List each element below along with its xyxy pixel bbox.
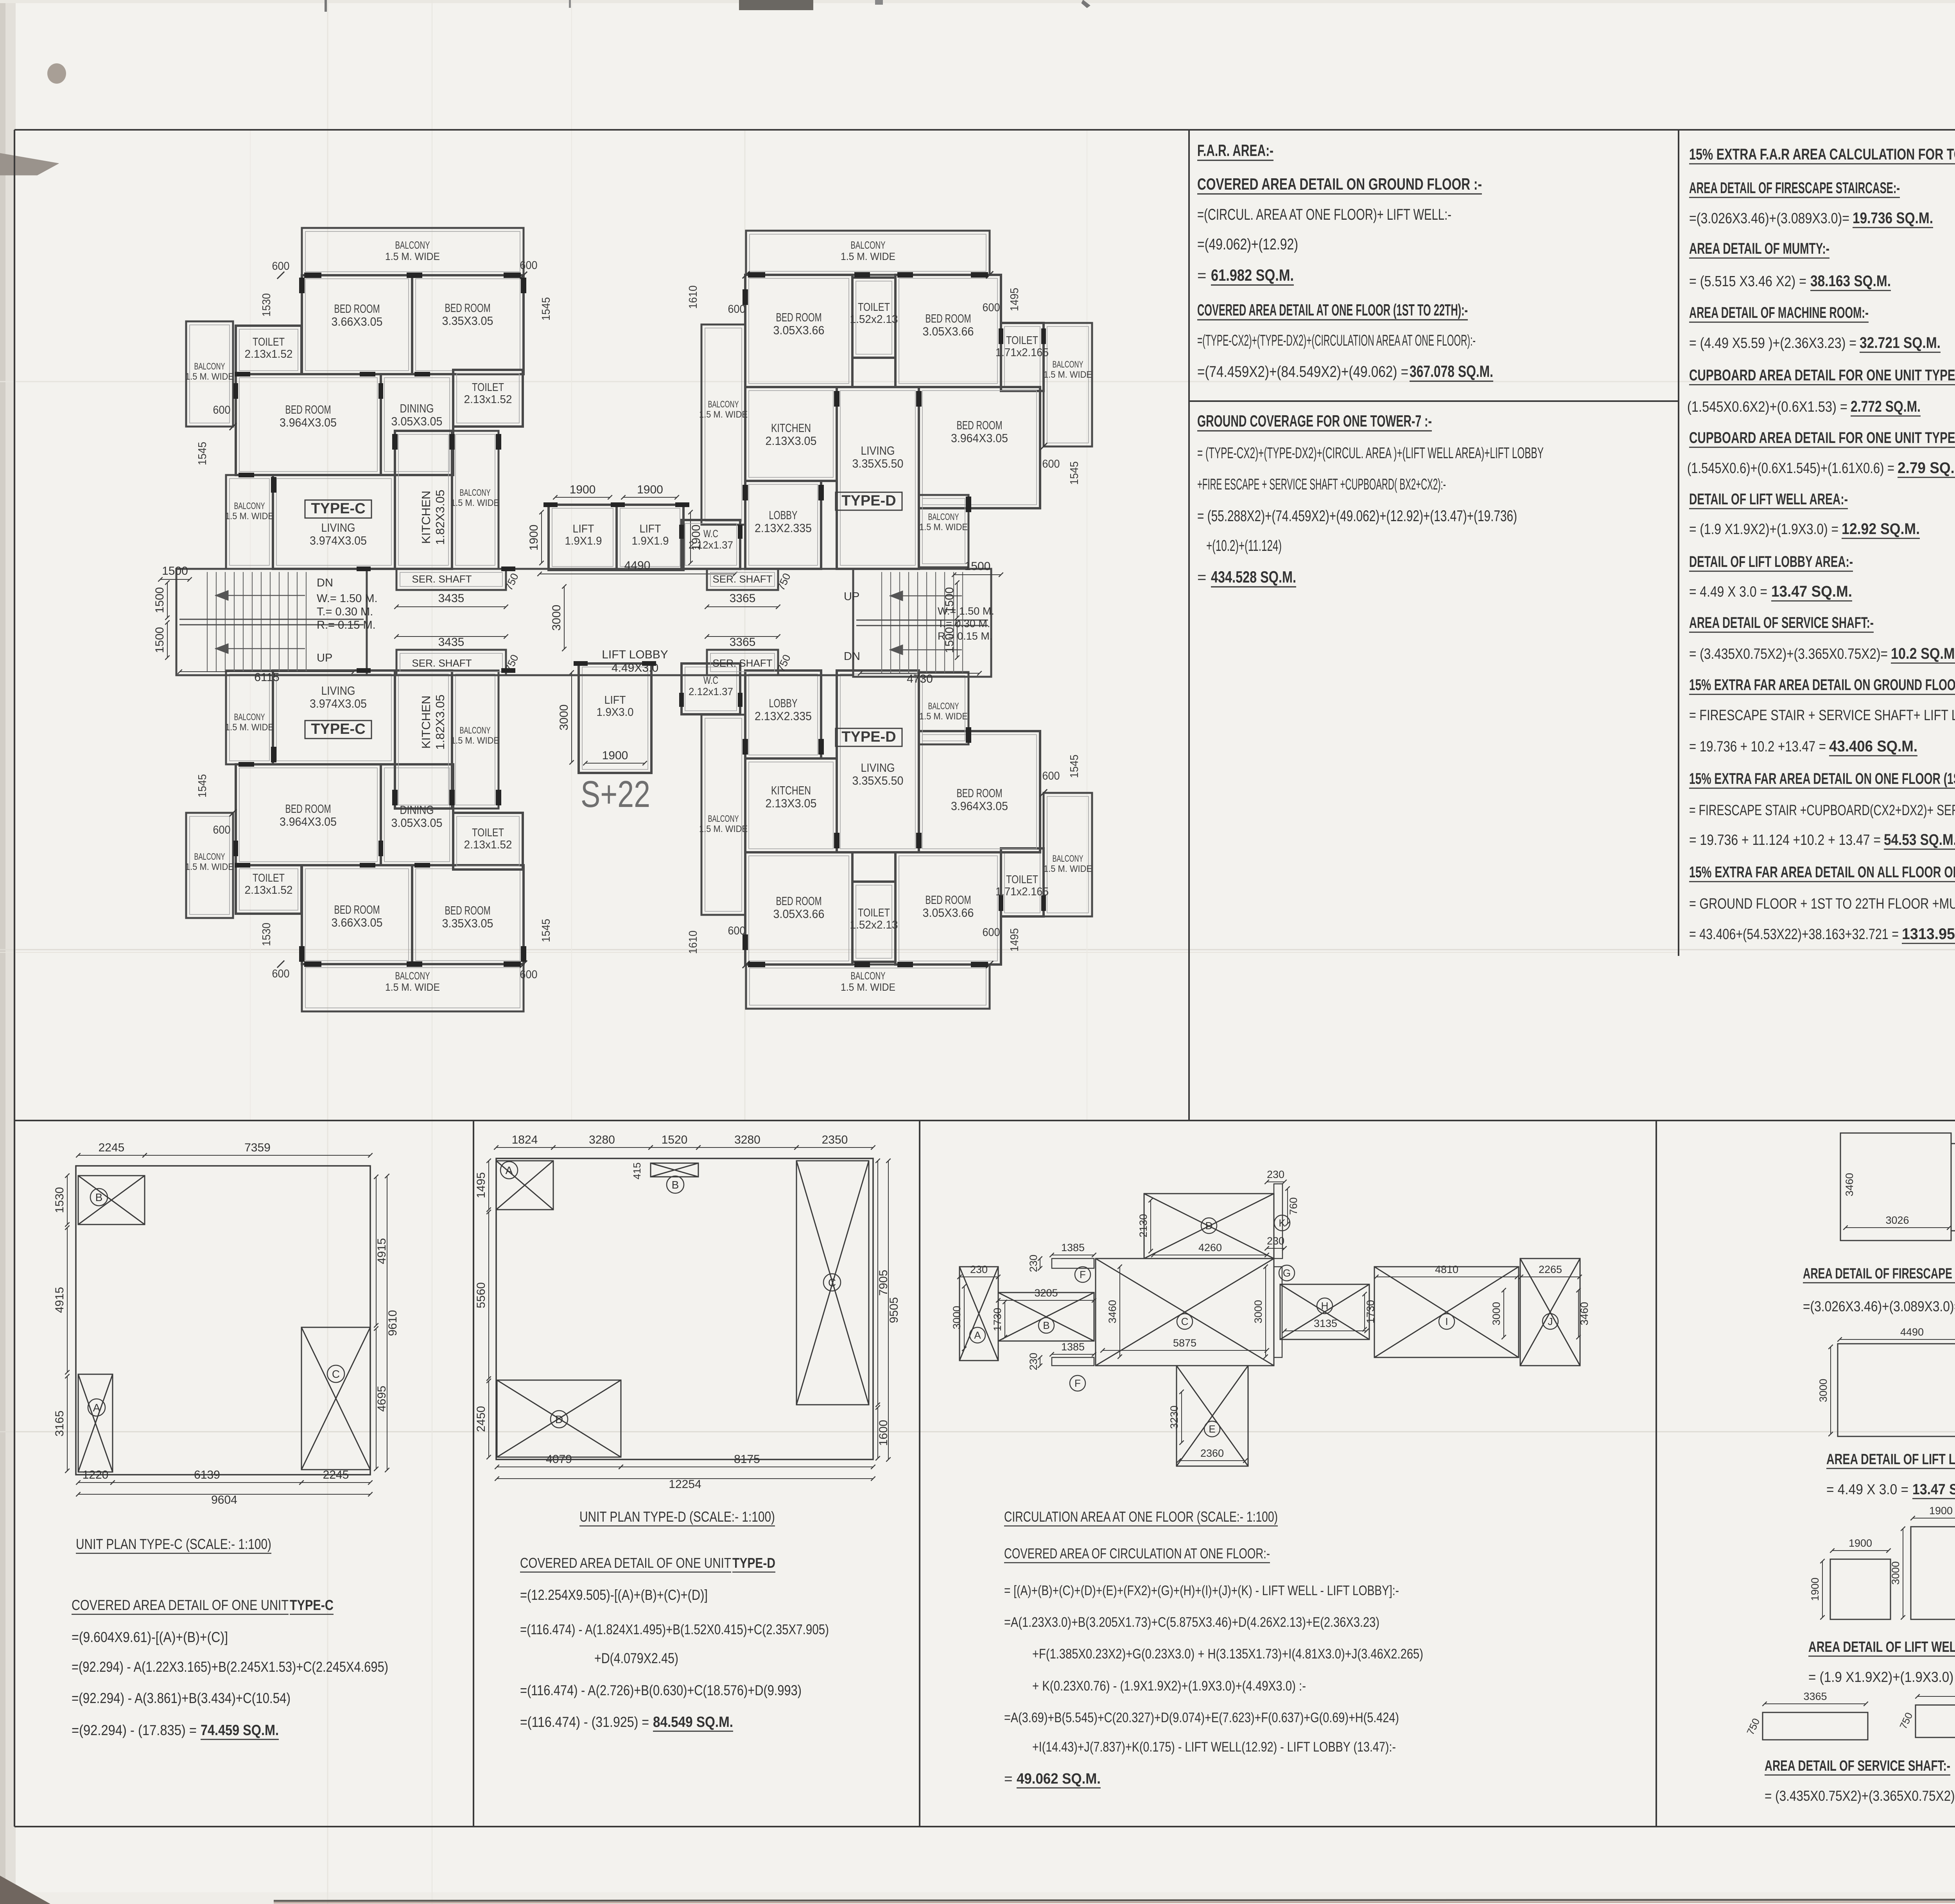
svg-text:BED ROOM: BED ROOM: [925, 312, 971, 325]
svg-text:43.406 SQ.M.: 43.406 SQ.M.: [1829, 738, 1917, 755]
svg-text:BALCONY: BALCONY: [1053, 359, 1083, 370]
svg-text:= (TYPE-CX2)+(TYPE-DX2)+(CIRCU: = (TYPE-CX2)+(TYPE-DX2)+(CIRCUL. AREA )+…: [1197, 445, 1544, 462]
svg-text:TOILET: TOILET: [253, 336, 285, 348]
svg-text:TYPE-D: TYPE-D: [841, 729, 896, 745]
svg-text:3460: 3460: [1107, 1300, 1118, 1323]
svg-text:1.5 M. WIDE: 1.5 M. WIDE: [919, 711, 968, 722]
svg-text:13.47 SQ.M.: 13.47 SQ.M.: [1771, 583, 1852, 600]
svg-text:B: B: [672, 1179, 679, 1191]
svg-text:1545: 1545: [196, 442, 209, 465]
svg-text:BED ROOM: BED ROOM: [776, 310, 822, 324]
svg-text:2350: 2350: [822, 1133, 848, 1146]
svg-text:=(92.294) - A(1.22X3.165)+B(2.: =(92.294) - A(1.22X3.165)+B(2.245X1.53)+…: [72, 1659, 388, 1675]
svg-text:2.13x1.52: 2.13x1.52: [245, 348, 293, 360]
svg-text:1.52x2.13: 1.52x2.13: [850, 919, 898, 931]
svg-text:F: F: [1074, 1377, 1081, 1389]
svg-text:1.82X3.05: 1.82X3.05: [433, 489, 447, 545]
svg-text:=(92.294) - A(3.861)+B(3.434)+: =(92.294) - A(3.861)+B(3.434)+C(10.54): [72, 1690, 291, 1706]
svg-text:UNIT PLAN TYPE-D (SCALE:- 1:1: UNIT PLAN TYPE-D (SCALE:- 1:100): [579, 1509, 775, 1525]
svg-text:3165: 3165: [53, 1411, 66, 1437]
svg-text:3000: 3000: [1252, 1300, 1264, 1323]
svg-text:C: C: [1181, 1316, 1189, 1327]
svg-text:1.5 M. WIDE: 1.5 M. WIDE: [185, 862, 234, 872]
svg-text:19.736 SQ.M.: 19.736 SQ.M.: [1853, 210, 1933, 227]
svg-text:600: 600: [213, 824, 231, 836]
svg-text:TOILET: TOILET: [858, 907, 890, 919]
svg-text:84.549 SQ.M.: 84.549 SQ.M.: [653, 1714, 733, 1730]
svg-text:49.062 SQ.M.: 49.062 SQ.M.: [1017, 1771, 1101, 1787]
svg-text:KITCHEN: KITCHEN: [771, 783, 811, 797]
svg-text:1500: 1500: [943, 587, 956, 613]
svg-text:1.9X1.9: 1.9X1.9: [565, 535, 602, 547]
svg-text:2245: 2245: [99, 1141, 125, 1154]
svg-text:3.66X3.05: 3.66X3.05: [332, 916, 383, 929]
svg-text:3365: 3365: [730, 592, 756, 605]
svg-text:3.35X3.05: 3.35X3.05: [442, 314, 493, 328]
svg-text:3230: 3230: [1168, 1406, 1180, 1429]
svg-text:E: E: [1209, 1423, 1215, 1435]
svg-text:CIRCULATION AREA AT ONE FLOOR: CIRCULATION AREA AT ONE FLOOR (SCALE:- 1…: [1004, 1509, 1278, 1525]
svg-text:2450: 2450: [475, 1406, 488, 1432]
svg-text:DN: DN: [317, 577, 333, 589]
svg-text:UP: UP: [844, 590, 859, 603]
svg-text:B: B: [95, 1191, 103, 1203]
svg-text:15% EXTRA F.A.R AREA CALCULATI: 15% EXTRA F.A.R AREA CALCULATION FOR TOW…: [1689, 146, 1955, 163]
svg-text:=(12.254X9.505)-[(A)+(B)+(C)+(: =(12.254X9.505)-[(A)+(B)+(C)+(D)]: [520, 1587, 708, 1603]
svg-text:1.71x2.165: 1.71x2.165: [995, 886, 1049, 898]
svg-text:1495: 1495: [1008, 928, 1021, 952]
svg-text:1.5 M. WIDE: 1.5 M. WIDE: [699, 409, 748, 420]
svg-text:I: I: [1445, 1316, 1448, 1327]
svg-text:DN: DN: [844, 650, 860, 663]
svg-text:1.5 M. WIDE: 1.5 M. WIDE: [699, 824, 748, 834]
svg-text:3.964X3.05: 3.964X3.05: [280, 416, 337, 429]
svg-text:1.5 M. WIDE: 1.5 M. WIDE: [841, 981, 895, 993]
svg-text:=(9.604X9.61)-[(A)+(B)+(C)]: =(9.604X9.61)-[(A)+(B)+(C)]: [72, 1629, 228, 1645]
svg-text:BED ROOM: BED ROOM: [925, 893, 971, 907]
svg-text:3.974X3.05: 3.974X3.05: [310, 534, 367, 547]
svg-text:KITCHEN: KITCHEN: [419, 491, 433, 544]
svg-text:1.9X3.0: 1.9X3.0: [597, 706, 634, 719]
svg-text:3000: 3000: [1890, 1561, 1901, 1585]
svg-text:=(92.294) - (17.835) =: =(92.294) - (17.835) =: [72, 1722, 197, 1738]
svg-text:=(116.474) - (31.925) =: =(116.474) - (31.925) =: [520, 1714, 649, 1730]
svg-text:COVERED AREA OF CIRCULATION AT: COVERED AREA OF CIRCULATION AT ONE FLOOR…: [1004, 1545, 1270, 1562]
svg-text:1900: 1900: [602, 749, 628, 762]
svg-text:CUPBOARD AREA DETAIL FOR ONE U: CUPBOARD AREA DETAIL FOR ONE UNIT TYPE-C: [1689, 367, 1955, 384]
svg-text:10.2 SQ.M.: 10.2 SQ.M.: [1891, 645, 1955, 662]
svg-text:LIFT LOBBY: LIFT LOBBY: [602, 648, 668, 661]
svg-text:3.05X3.66: 3.05X3.66: [773, 323, 825, 337]
svg-text:LIFT: LIFT: [604, 694, 626, 706]
svg-text:=(3.026X3.46)+(3.089X3.0)=: =(3.026X3.46)+(3.089X3.0)=: [1803, 1298, 1955, 1314]
svg-text:= (3.435X0.75X2)+(3.365X0.75X2: = (3.435X0.75X2)+(3.365X0.75X2)=: [1689, 646, 1888, 662]
svg-text:1500: 1500: [965, 560, 991, 573]
svg-text:2.13X2.335: 2.13X2.335: [755, 521, 812, 535]
svg-text:1530: 1530: [53, 1187, 66, 1213]
svg-text:4915: 4915: [53, 1287, 66, 1313]
svg-text:1824: 1824: [512, 1133, 538, 1146]
svg-text:AREA DETAIL OF SERVICE SHAFT:-: AREA DETAIL OF SERVICE SHAFT:-: [1765, 1758, 1950, 1774]
svg-text:+F(1.385X0.23X2)+G(0.23X3.0) +: +F(1.385X0.23X2)+G(0.23X3.0) + H(3.135X1…: [1032, 1646, 1423, 1662]
svg-text:1495: 1495: [1008, 288, 1021, 311]
svg-text:1610: 1610: [687, 285, 699, 309]
svg-text:= 19.736 + 11.124 +10.2 + 13.4: = 19.736 + 11.124 +10.2 + 13.47 =: [1689, 832, 1881, 848]
svg-text:3460: 3460: [1844, 1173, 1855, 1196]
svg-text:LIVING: LIVING: [321, 684, 355, 697]
svg-text:=: =: [1197, 569, 1206, 586]
svg-text:61.982 SQ.M.: 61.982 SQ.M.: [1211, 266, 1294, 284]
svg-text:AREA DETAIL OF FIRESCAPE STAIR: AREA DETAIL OF FIRESCAPE STAIRCASE:-: [1689, 179, 1900, 197]
svg-text:74.459 SQ.M.: 74.459 SQ.M.: [201, 1722, 279, 1739]
svg-text:367.078 SQ.M.: 367.078 SQ.M.: [1410, 362, 1493, 380]
svg-text:LOBBY: LOBBY: [769, 508, 798, 522]
svg-text:1545: 1545: [540, 297, 552, 321]
svg-text:D: D: [1205, 1220, 1213, 1232]
svg-text:1900: 1900: [527, 525, 540, 551]
svg-text:BALCONY: BALCONY: [234, 501, 265, 511]
svg-text:TYPE-D: TYPE-D: [732, 1555, 775, 1571]
svg-text:J: J: [1548, 1316, 1553, 1327]
svg-text:5875: 5875: [1173, 1337, 1196, 1349]
svg-text:415: 415: [631, 1162, 643, 1179]
svg-text:1545: 1545: [196, 774, 209, 798]
svg-text:12254: 12254: [669, 1478, 701, 1491]
svg-text:3.05X3.05: 3.05X3.05: [391, 816, 443, 830]
svg-text:3.05X3.66: 3.05X3.66: [923, 906, 974, 920]
svg-text:BED ROOM: BED ROOM: [445, 904, 491, 917]
svg-text:4695: 4695: [375, 1386, 388, 1412]
svg-text:BALCONY: BALCONY: [928, 701, 959, 712]
svg-text:=(116.474) - A(1.824X1.495)+B(: =(116.474) - A(1.824X1.495)+B(1.52X0.415…: [520, 1621, 829, 1637]
svg-text:(1.545X0.6X2)+(0.6X1.53) =: (1.545X0.6X2)+(0.6X1.53) =: [1687, 399, 1847, 415]
svg-text:32.721 SQ.M.: 32.721 SQ.M.: [1860, 334, 1941, 351]
svg-text:= 19.736 + 10.2 +13.47 =: = 19.736 + 10.2 +13.47 =: [1689, 739, 1826, 755]
svg-text:F: F: [1080, 1269, 1086, 1280]
svg-text:3365: 3365: [1803, 1691, 1827, 1702]
svg-text:W.C: W.C: [703, 528, 718, 540]
svg-text:A: A: [506, 1164, 513, 1176]
svg-text:13.47 SQ.M.: 13.47 SQ.M.: [1912, 1481, 1955, 1498]
svg-text:3435: 3435: [438, 592, 465, 605]
svg-text:+ K(0.23X0.76) - (1.9X1.9X2)+(: + K(0.23X0.76) - (1.9X1.9X2)+(1.9X3.0)+(…: [1032, 1678, 1306, 1694]
svg-text:1900: 1900: [1809, 1578, 1821, 1601]
svg-text:= (1.9 X1.9X2)+(1.9X3.0) =: = (1.9 X1.9X2)+(1.9X3.0) =: [1689, 521, 1838, 538]
svg-text:15% EXTRA FAR AREA DETAIL ON O: 15% EXTRA FAR AREA DETAIL ON ONE FLOOR (…: [1689, 770, 1955, 787]
svg-text:BED ROOM: BED ROOM: [334, 903, 380, 916]
svg-text:2.13x1.52: 2.13x1.52: [464, 839, 512, 851]
svg-text:AREA DETAIL OF LIFT LOBBY:-: AREA DETAIL OF LIFT LOBBY:-: [1826, 1451, 1955, 1468]
svg-text:9505: 9505: [888, 1297, 900, 1323]
svg-text:38.163 SQ.M.: 38.163 SQ.M.: [1810, 273, 1891, 290]
svg-text:4079: 4079: [546, 1453, 572, 1466]
svg-text:=A(1.23X3.0)+B(3.205X1.73)+C(5: =A(1.23X3.0)+B(3.205X1.73)+C(5.875X3.46)…: [1004, 1615, 1379, 1630]
svg-text:4490: 4490: [1900, 1326, 1924, 1338]
svg-text:TOILET: TOILET: [253, 872, 285, 884]
svg-text:1.5 M. WIDE: 1.5 M. WIDE: [225, 511, 274, 522]
svg-text:1545: 1545: [540, 919, 552, 942]
svg-text:=: =: [1004, 1771, 1013, 1787]
svg-text:230: 230: [1028, 1353, 1039, 1370]
svg-text:1530: 1530: [260, 293, 273, 317]
svg-text:2.13X2.335: 2.13X2.335: [755, 709, 812, 723]
svg-text:+(10.2)+(11.124): +(10.2)+(11.124): [1206, 537, 1282, 554]
svg-text:7359: 7359: [244, 1141, 271, 1154]
svg-text:= 4.49 X 3.0 =: = 4.49 X 3.0 =: [1826, 1481, 1908, 1497]
svg-text:= GROUND FLOOR + 1ST TO 22TH: = GROUND FLOOR + 1ST TO 22TH FLOOR +MUMT…: [1689, 896, 1955, 912]
svg-text:G: G: [1283, 1267, 1291, 1279]
svg-text:3000: 3000: [1817, 1379, 1829, 1402]
svg-text:3435: 3435: [438, 636, 465, 649]
svg-text:1500: 1500: [153, 627, 166, 653]
svg-text:3000: 3000: [550, 605, 563, 631]
svg-text:1900: 1900: [637, 483, 663, 496]
svg-text:SER. SHAFT: SER. SHAFT: [712, 657, 772, 669]
svg-text:DETAIL OF LIFT WELL AREA:-: DETAIL OF LIFT WELL AREA:-: [1689, 491, 1848, 508]
svg-text:12.92 SQ.M.: 12.92 SQ.M.: [1842, 520, 1920, 538]
svg-text:9604: 9604: [211, 1493, 237, 1506]
svg-text:1385: 1385: [1061, 1242, 1085, 1253]
svg-text:BALCONY: BALCONY: [395, 239, 430, 251]
svg-text:BED ROOM: BED ROOM: [445, 301, 491, 315]
svg-text:1900: 1900: [570, 483, 596, 496]
svg-text:KITCHEN: KITCHEN: [771, 421, 811, 435]
svg-text:=(116.474) - A(2.726)+B(0.630): =(116.474) - A(2.726)+B(0.630)+C(18.576)…: [520, 1682, 802, 1698]
svg-text:230: 230: [970, 1264, 988, 1275]
svg-text:2.12x1.37: 2.12x1.37: [689, 686, 733, 697]
svg-text:1.5 M. WIDE: 1.5 M. WIDE: [385, 981, 440, 993]
svg-text:3.964X3.05: 3.964X3.05: [951, 799, 1008, 813]
svg-text:3026: 3026: [1885, 1214, 1909, 1226]
svg-text:TYPE-D: TYPE-D: [841, 493, 896, 509]
svg-text:F.A.R. AREA:-: F.A.R. AREA:-: [1197, 141, 1273, 160]
svg-text:BALCONY: BALCONY: [708, 399, 739, 410]
svg-text:1.71x2.165: 1.71x2.165: [995, 346, 1049, 359]
svg-text:600: 600: [1042, 458, 1060, 470]
svg-text:(1.545X0.6)+(0.6X1.545)+(1.61X: (1.545X0.6)+(0.6X1.545)+(1.61X0.6) =: [1687, 460, 1894, 477]
svg-text:= 43.406+(54.53X22)+38.163+32.: = 43.406+(54.53X22)+38.163+32.721 =: [1689, 926, 1899, 943]
svg-text:TOILET: TOILET: [1006, 334, 1038, 347]
svg-text:1500: 1500: [943, 627, 956, 653]
svg-text:COVERED AREA DETAIL OF ONE UNI: COVERED AREA DETAIL OF ONE UNIT: [72, 1597, 289, 1613]
svg-text:BED ROOM: BED ROOM: [776, 894, 822, 908]
svg-text:3.05X3.05: 3.05X3.05: [391, 414, 443, 428]
svg-text:SER. SHAFT: SER. SHAFT: [412, 657, 472, 669]
svg-text:A: A: [93, 1402, 100, 1414]
svg-text:K: K: [1279, 1217, 1286, 1229]
svg-text:TOILET: TOILET: [472, 827, 504, 839]
svg-text:= (1.9 X1.9X2)+(1.9X3.0) =: = (1.9 X1.9X2)+(1.9X3.0) =: [1808, 1669, 1955, 1685]
svg-text:UNIT PLAN TYPE-C (SCALE:- 1:1: UNIT PLAN TYPE-C (SCALE:- 1:100): [76, 1536, 271, 1552]
svg-text:=(TYPE-CX2)+(TYPE-DX2)+(CIRCUL: =(TYPE-CX2)+(TYPE-DX2)+(CIRCULATION AREA…: [1197, 332, 1476, 349]
svg-text:C: C: [828, 1277, 836, 1289]
svg-text:BALCONY: BALCONY: [460, 488, 491, 498]
svg-text:1495: 1495: [475, 1172, 488, 1198]
svg-text:+FIRE ESCAPE + SERVICE SHAFT +: +FIRE ESCAPE + SERVICE SHAFT +CUPBOARD( …: [1197, 476, 1446, 493]
svg-text:2.79 SQ.M.: 2.79 SQ.M.: [1898, 459, 1955, 477]
svg-text:BED ROOM: BED ROOM: [285, 403, 331, 416]
svg-text:TOILET: TOILET: [1006, 873, 1038, 886]
svg-text:760: 760: [1288, 1197, 1299, 1215]
svg-text:1730: 1730: [1365, 1300, 1376, 1323]
svg-text:= (4.49 X5.59 )+(2.36X3.23) =: = (4.49 X5.59 )+(2.36X3.23) =: [1689, 335, 1856, 351]
svg-text:H: H: [1321, 1300, 1329, 1312]
svg-text:1545: 1545: [1068, 755, 1081, 778]
svg-text:1.5 M. WIDE: 1.5 M. WIDE: [225, 722, 274, 733]
svg-text:1530: 1530: [260, 923, 273, 946]
svg-text:SER. SHAFT: SER. SHAFT: [412, 573, 472, 585]
svg-text:TYPE-C: TYPE-C: [311, 500, 365, 517]
svg-text:3.974X3.05: 3.974X3.05: [310, 697, 367, 710]
svg-text:BED ROOM: BED ROOM: [957, 786, 1003, 800]
svg-text:GROUND COVERAGE FOR ONE TOWER-: GROUND COVERAGE FOR ONE TOWER-7 :-: [1197, 412, 1432, 430]
svg-text:1900: 1900: [1929, 1505, 1953, 1517]
svg-text:3460: 3460: [1578, 1302, 1590, 1325]
svg-text:3280: 3280: [734, 1133, 760, 1146]
svg-text:2.13X3.05: 2.13X3.05: [766, 796, 817, 810]
svg-text:A: A: [974, 1329, 981, 1341]
svg-text:2.13x1.52: 2.13x1.52: [245, 884, 293, 896]
svg-text:3135: 3135: [1314, 1318, 1337, 1329]
svg-text:2.13x1.52: 2.13x1.52: [464, 393, 512, 406]
svg-text:1.5 M. WIDE: 1.5 M. WIDE: [385, 251, 440, 262]
svg-text:BED ROOM: BED ROOM: [957, 418, 1003, 432]
svg-text:1.52x2.13: 1.52x2.13: [850, 313, 898, 326]
svg-text:D: D: [555, 1413, 563, 1425]
svg-text:COVERED AREA DETAIL OF ONE UNI: COVERED AREA DETAIL OF ONE UNIT: [520, 1555, 731, 1571]
svg-text:R.= 0.15 M.: R.= 0.15 M.: [317, 619, 376, 631]
svg-text:=(CIRCUL. AREA AT ONE FLOOR)+: =(CIRCUL. AREA AT ONE FLOOR)+ LIFT WELL:…: [1197, 206, 1451, 223]
svg-text:1.9X1.9: 1.9X1.9: [632, 535, 669, 547]
svg-text:1520: 1520: [662, 1133, 688, 1146]
svg-text:1545: 1545: [1068, 461, 1081, 485]
svg-text:=(74.459X2)+(84.549X2)+(49.062: =(74.459X2)+(84.549X2)+(49.062) =: [1197, 363, 1408, 380]
svg-text:=: =: [1197, 267, 1206, 284]
svg-text:BALCONY: BALCONY: [1053, 853, 1083, 864]
svg-text:AREA DETAIL OF SERVICE SHAFT:-: AREA DETAIL OF SERVICE SHAFT:-: [1689, 614, 1874, 631]
svg-text:2.13X3.05: 2.13X3.05: [766, 434, 817, 448]
svg-text:DINING: DINING: [400, 402, 434, 415]
svg-text:1.5 M. WIDE: 1.5 M. WIDE: [919, 522, 968, 532]
svg-text:CUPBOARD AREA DETAIL FOR ONE U: CUPBOARD AREA DETAIL FOR ONE UNIT TYPE-D: [1689, 429, 1955, 446]
svg-text:= FIRESCAPE STAIR + SERVICE SH: = FIRESCAPE STAIR + SERVICE SHAFT+ LIFT …: [1689, 707, 1955, 724]
svg-text:BALCONY: BALCONY: [851, 239, 886, 251]
svg-text:434.528 SQ.M.: 434.528 SQ.M.: [1211, 568, 1296, 586]
svg-text:AREA DETAIL OF FIRESCAPE STAIR: AREA DETAIL OF FIRESCAPE STAIRCASE:-: [1803, 1266, 1955, 1282]
svg-text:600: 600: [983, 301, 1000, 314]
svg-text:BALCONY: BALCONY: [928, 512, 959, 522]
svg-text:600: 600: [272, 968, 290, 980]
svg-text:3.964X3.05: 3.964X3.05: [951, 431, 1008, 445]
svg-text:1500: 1500: [153, 587, 166, 613]
svg-text:W.= 1.50 M.: W.= 1.50 M.: [317, 592, 378, 605]
svg-text:15% EXTRA FAR AREA DETAIL ON A: 15% EXTRA FAR AREA DETAIL ON ALL FLOOR O…: [1689, 864, 1955, 881]
svg-text:5560: 5560: [475, 1282, 488, 1309]
svg-text:600: 600: [520, 968, 538, 981]
svg-text:4810: 4810: [1435, 1264, 1458, 1275]
svg-text:BALCONY: BALCONY: [460, 725, 491, 736]
svg-text:= (5.515 X3.46 X2) =: = (5.515 X3.46 X2) =: [1689, 273, 1806, 290]
svg-text:3280: 3280: [589, 1133, 615, 1146]
svg-text:1313.95 SQ.M.: 1313.95 SQ.M.: [1902, 925, 1955, 943]
svg-text:1500: 1500: [162, 565, 188, 577]
svg-text:1.5 M. WIDE: 1.5 M. WIDE: [451, 735, 499, 746]
svg-text:3.35X3.05: 3.35X3.05: [442, 916, 493, 930]
svg-text:BALCONY: BALCONY: [708, 814, 739, 824]
svg-text:LOBBY: LOBBY: [769, 696, 798, 710]
svg-text:3.66X3.05: 3.66X3.05: [332, 315, 383, 328]
svg-text:= (3.435X0.75X2)+(3.365X0.75X2: = (3.435X0.75X2)+(3.365X0.75X2)=: [1765, 1788, 1955, 1804]
svg-text:1.82X3.05: 1.82X3.05: [433, 694, 447, 749]
svg-text:2130: 2130: [1137, 1214, 1149, 1237]
svg-text:=(49.062)+(12.92): =(49.062)+(12.92): [1197, 236, 1298, 253]
svg-text:3.05X3.66: 3.05X3.66: [773, 907, 825, 921]
svg-text:AREA DETAIL OF MUMTY:-: AREA DETAIL OF MUMTY:-: [1689, 240, 1829, 257]
svg-text:C: C: [332, 1368, 340, 1380]
svg-text:3.964X3.05: 3.964X3.05: [280, 815, 337, 828]
svg-text:600: 600: [272, 260, 290, 273]
svg-text:LIFT: LIFT: [573, 523, 594, 535]
svg-text:UP: UP: [317, 652, 332, 664]
svg-text:600: 600: [520, 259, 538, 272]
svg-text:600: 600: [1042, 770, 1060, 782]
svg-text:3000: 3000: [1490, 1302, 1502, 1325]
svg-text:= [(A)+(B)+(C)+(D)+(E)+(FX2)+(: = [(A)+(B)+(C)+(D)+(E)+(FX2)+(G)+(H)+(I)…: [1004, 1583, 1399, 1598]
svg-text:1.5 M. WIDE: 1.5 M. WIDE: [1044, 864, 1092, 874]
svg-text:1.5 M. WIDE: 1.5 M. WIDE: [185, 371, 234, 382]
svg-text:1730: 1730: [992, 1308, 1003, 1331]
svg-text:2245: 2245: [323, 1468, 349, 1481]
svg-text:SER. SHAFT: SER. SHAFT: [712, 573, 772, 585]
svg-text:DINING: DINING: [400, 803, 434, 817]
svg-text:8175: 8175: [734, 1453, 760, 1466]
svg-text:1.5 M. WIDE: 1.5 M. WIDE: [1044, 369, 1092, 380]
svg-text:4260: 4260: [1198, 1242, 1222, 1253]
svg-text:S+22: S+22: [581, 773, 650, 815]
svg-text:DETAIL OF LIFT LOBBY AREA:-: DETAIL OF LIFT LOBBY AREA:-: [1689, 553, 1853, 570]
svg-text:= (55.288X2)+(74.459X2)+(49.0: = (55.288X2)+(74.459X2)+(49.062)+(12.92)…: [1197, 507, 1517, 525]
svg-text:BALCONY: BALCONY: [395, 970, 430, 982]
svg-text:1.5 M. WIDE: 1.5 M. WIDE: [451, 498, 499, 508]
svg-text:3.05X3.66: 3.05X3.66: [923, 325, 974, 338]
svg-text:TYPE-C: TYPE-C: [290, 1597, 334, 1613]
svg-text:2265: 2265: [1539, 1264, 1562, 1275]
svg-text:BED ROOM: BED ROOM: [334, 302, 380, 316]
svg-text:3.35X5.50: 3.35X5.50: [852, 774, 904, 787]
svg-text:T.= 0.30 M.: T.= 0.30 M.: [317, 606, 373, 618]
svg-text:TOILET: TOILET: [858, 301, 890, 314]
svg-text:AREA DETAIL OF MACHINE ROOM:-: AREA DETAIL OF MACHINE ROOM:-: [1689, 304, 1869, 321]
svg-text:+I(14.43)+J(7.837)+K(0.175) -: +I(14.43)+J(7.837)+K(0.175) - LIFT WELL(…: [1032, 1739, 1396, 1755]
svg-text:LIVING: LIVING: [861, 444, 895, 457]
svg-text:TOILET: TOILET: [472, 381, 504, 394]
svg-text:230: 230: [1267, 1169, 1284, 1180]
svg-text:3000: 3000: [558, 705, 570, 731]
svg-text:AREA DETAIL OF LIFT WELL:-: AREA DETAIL OF LIFT WELL:-: [1808, 1639, 1955, 1655]
svg-text:3205: 3205: [1034, 1287, 1058, 1299]
svg-text:BALCONY: BALCONY: [851, 970, 886, 982]
svg-text:600: 600: [983, 926, 1000, 939]
svg-text:TYPE-C: TYPE-C: [311, 721, 365, 737]
svg-text:LIVING: LIVING: [861, 761, 895, 775]
svg-text:3000: 3000: [951, 1306, 963, 1329]
svg-text:B: B: [1043, 1320, 1049, 1331]
svg-text:= FIRESCAPE STAIR +CUPBOARD(CX: = FIRESCAPE STAIR +CUPBOARD(CX2+DX2)+ SE…: [1689, 802, 1955, 819]
svg-text:2.12x1.37: 2.12x1.37: [689, 539, 733, 551]
svg-text:1385: 1385: [1061, 1341, 1085, 1353]
svg-text:54.53 SQ.M.: 54.53 SQ.M.: [1884, 831, 1955, 848]
svg-text:4915: 4915: [375, 1238, 388, 1264]
